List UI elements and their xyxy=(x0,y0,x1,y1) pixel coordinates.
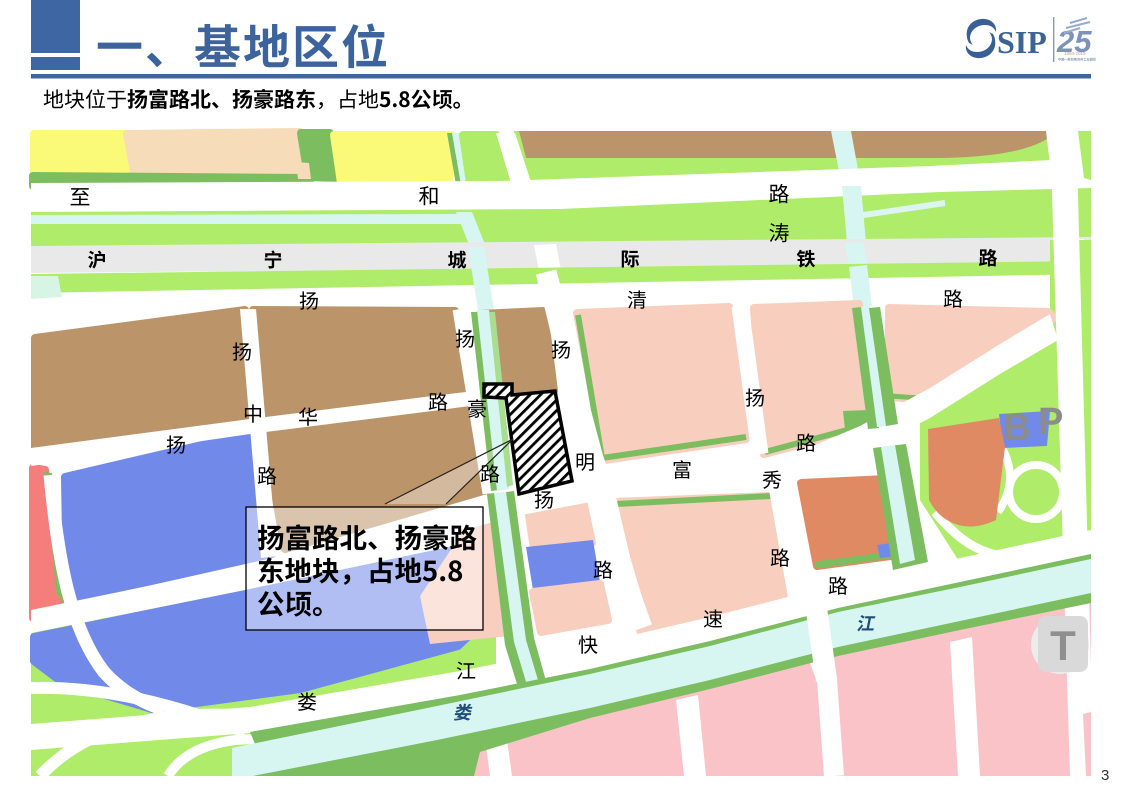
svg-text:1994-2019: 1994-2019 xyxy=(1064,51,1086,56)
svg-text:B: B xyxy=(1003,407,1030,449)
svg-text:T: T xyxy=(1050,622,1076,669)
svg-text:3: 3 xyxy=(1101,767,1109,784)
svg-text:P: P xyxy=(1038,401,1063,443)
svg-text:SIP: SIP xyxy=(997,24,1047,60)
